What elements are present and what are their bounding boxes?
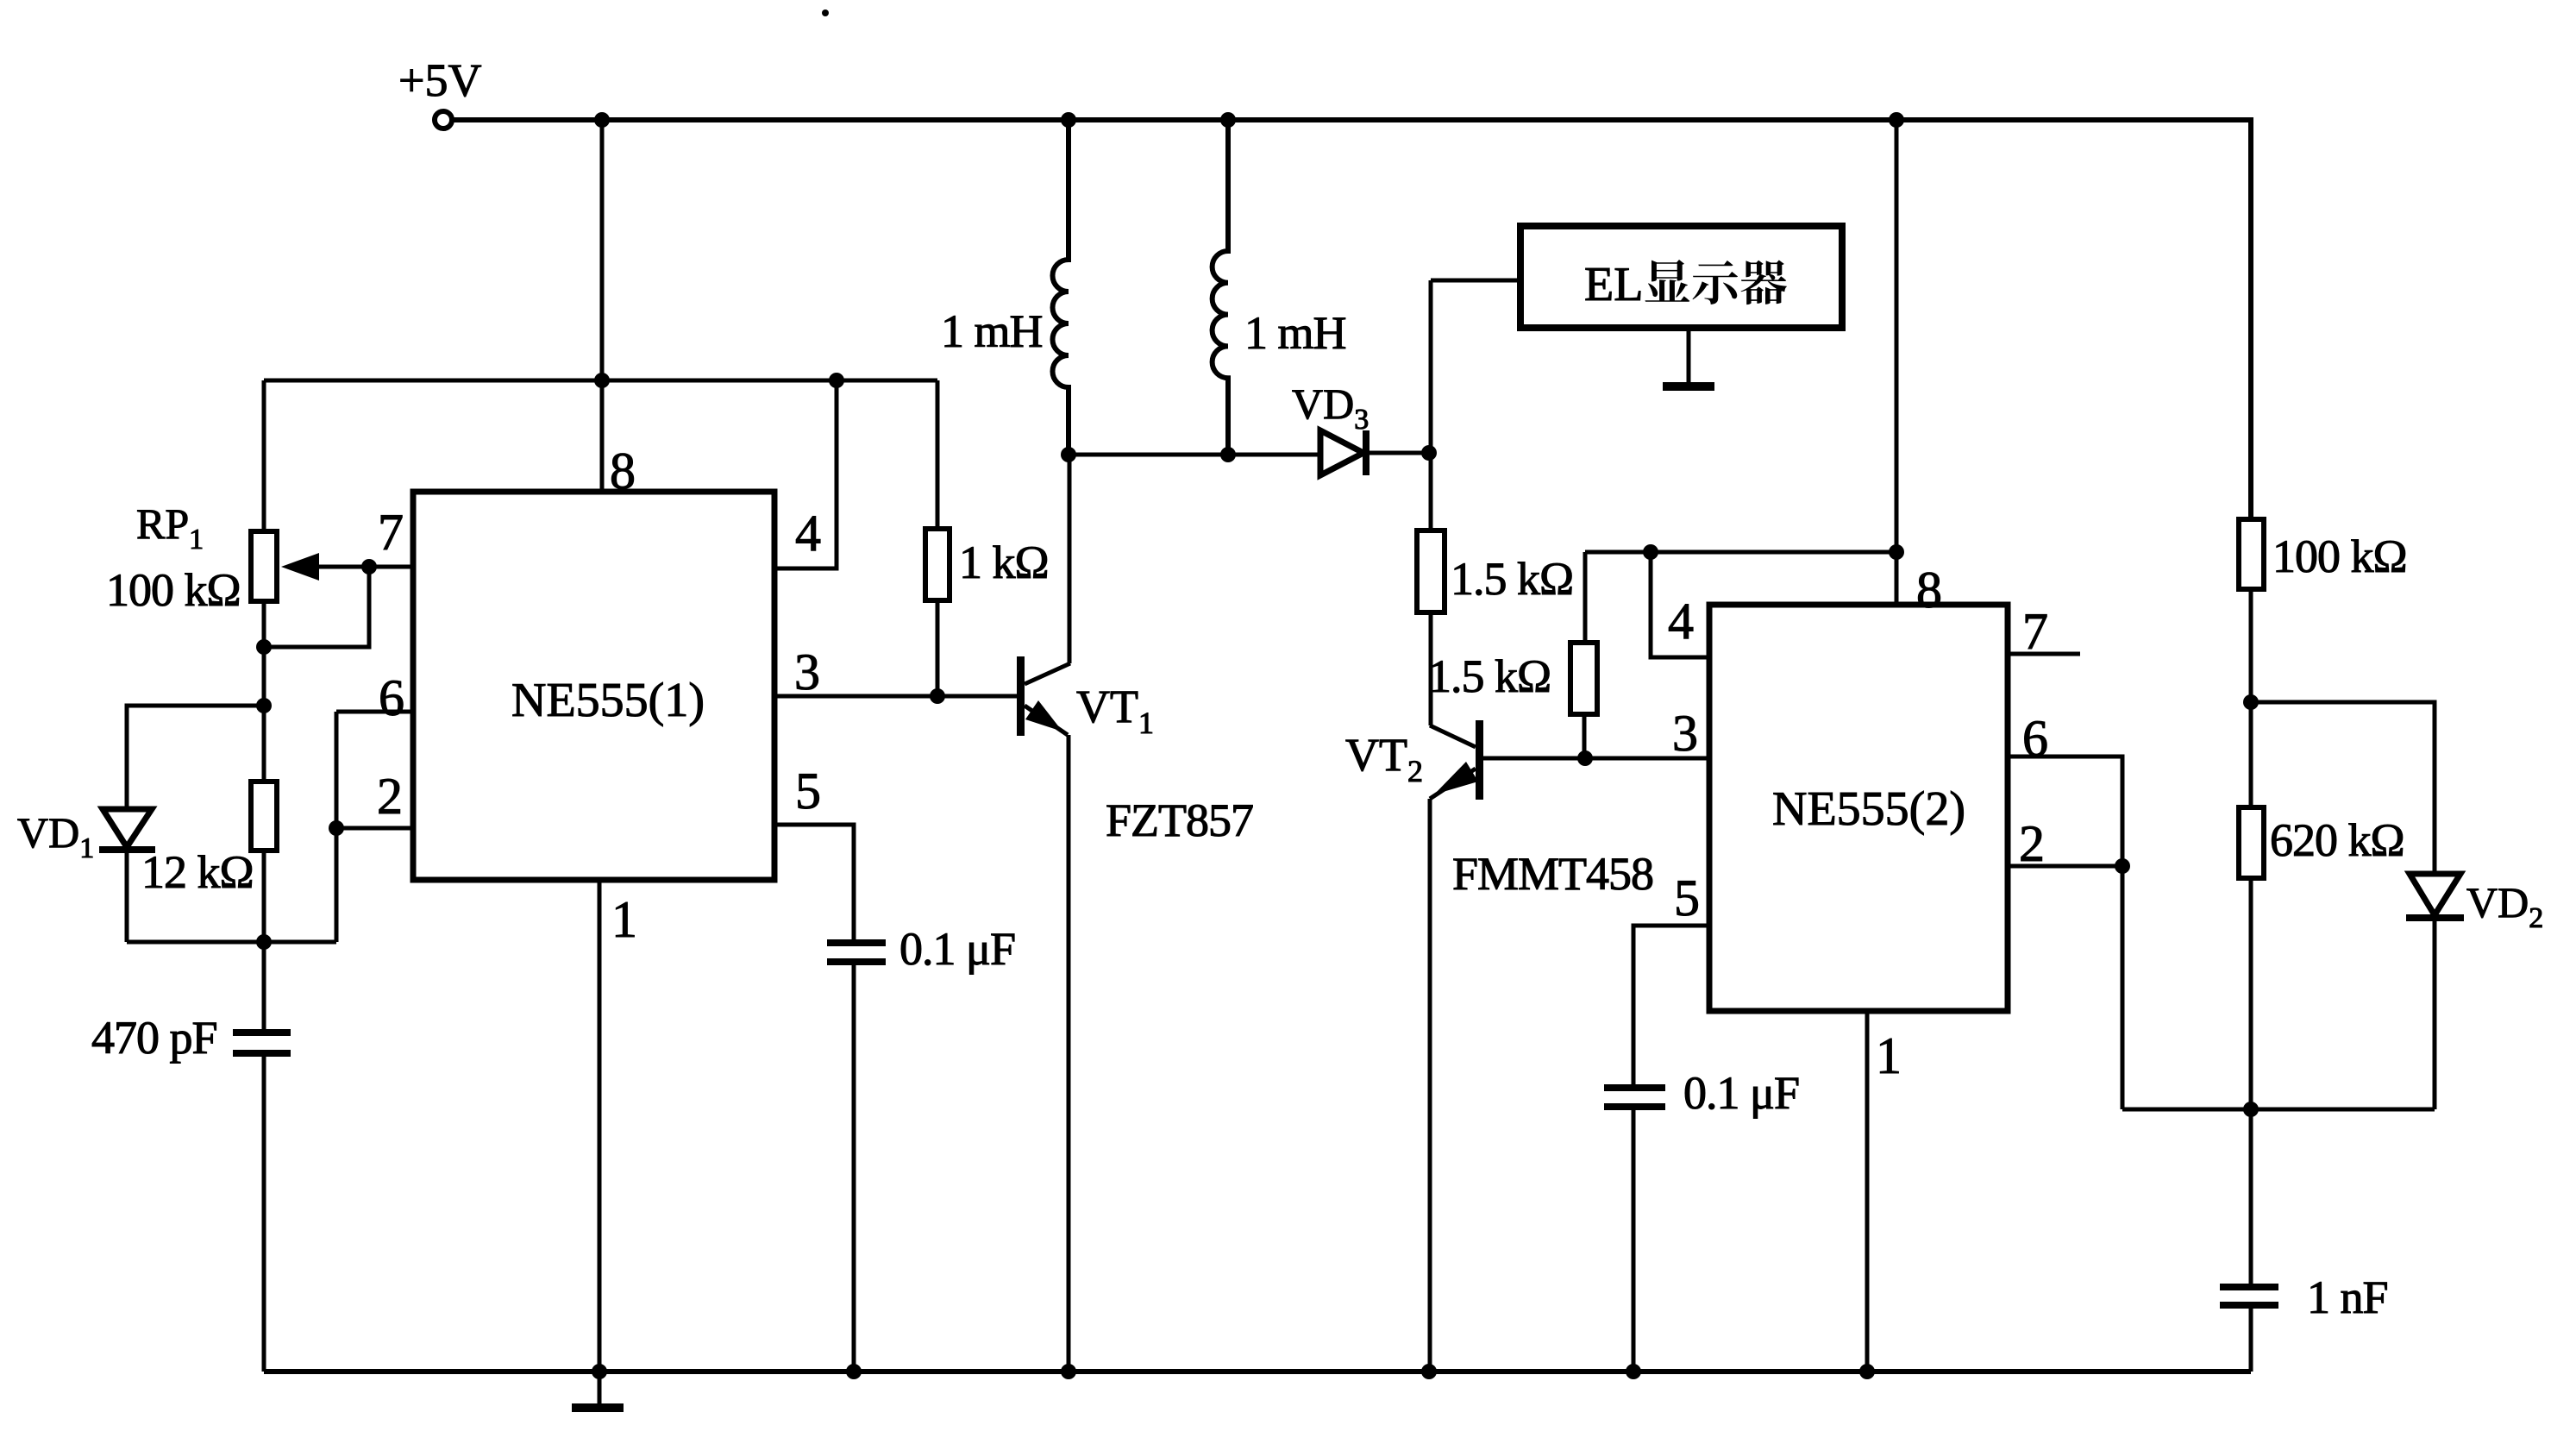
svg-text:7: 7 xyxy=(378,504,404,561)
svg-text:NE555(1): NE555(1) xyxy=(511,674,705,727)
svg-text:NE555(2): NE555(2) xyxy=(1772,782,1965,836)
svg-text:1 mH: 1 mH xyxy=(941,305,1043,357)
svg-text:1.5 kΩ: 1.5 kΩ xyxy=(1451,553,1573,605)
svg-text:12 kΩ: 12 kΩ xyxy=(141,846,254,898)
svg-text:100 kΩ: 100 kΩ xyxy=(2272,531,2407,582)
svg-text:6: 6 xyxy=(379,669,404,726)
svg-text:1 mH: 1 mH xyxy=(1244,307,1346,359)
svg-text:7: 7 xyxy=(2022,603,2048,660)
svg-text:FZT857: FZT857 xyxy=(1106,794,1253,846)
svg-text:3: 3 xyxy=(794,644,820,700)
svg-text:+5V: +5V xyxy=(398,54,481,106)
svg-text:2: 2 xyxy=(377,768,403,825)
svg-text:2: 2 xyxy=(2019,815,2045,872)
svg-text:0.1 μF: 0.1 μF xyxy=(1683,1067,1799,1119)
svg-text:5: 5 xyxy=(795,763,821,819)
svg-text:1: 1 xyxy=(1876,1027,1902,1084)
svg-text:470 pF: 470 pF xyxy=(91,1012,217,1064)
svg-text:620 kΩ: 620 kΩ xyxy=(2270,814,2404,866)
svg-text:1.5 kΩ: 1.5 kΩ xyxy=(1428,650,1551,702)
svg-text:1 nF: 1 nF xyxy=(2307,1271,2388,1323)
svg-text:8: 8 xyxy=(1916,562,1942,618)
svg-text:100 kΩ: 100 kΩ xyxy=(106,564,241,616)
svg-text:EL: EL xyxy=(1584,258,1643,311)
svg-text:1: 1 xyxy=(611,891,637,948)
svg-text:0.1 μF: 0.1 μF xyxy=(899,923,1015,975)
svg-text:4: 4 xyxy=(795,505,821,562)
svg-text:8: 8 xyxy=(610,443,636,499)
svg-text:1 kΩ: 1 kΩ xyxy=(959,537,1049,588)
svg-text:FMMT458: FMMT458 xyxy=(1452,848,1653,900)
svg-text:4: 4 xyxy=(1668,593,1694,650)
svg-text:3: 3 xyxy=(1672,705,1698,762)
svg-text:5: 5 xyxy=(1674,870,1700,926)
